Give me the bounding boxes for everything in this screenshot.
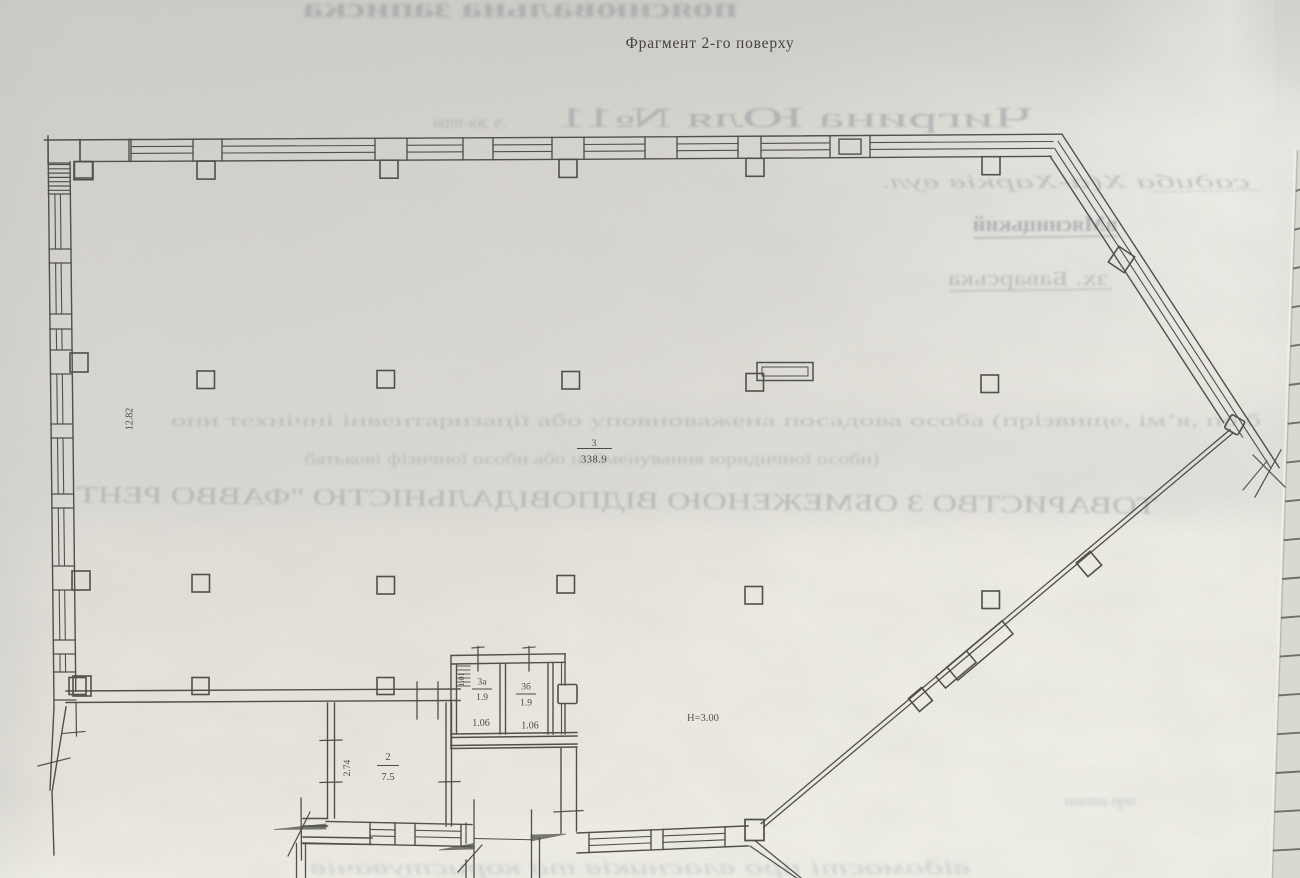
svg-text:ват-кв. е.: ват-кв. е. [433, 112, 506, 132]
svg-text:1.01: 1.01 [457, 673, 466, 687]
svg-text:2.74: 2.74 [343, 759, 353, 776]
svg-text:Фрагмент 2-го поверху: Фрагмент 2-го поверху [626, 35, 795, 52]
svg-text:3а: 3а [478, 678, 488, 688]
svg-text:зх. Баварська: зх. Баварська [948, 268, 1108, 290]
svg-text:Чигрина Юля №11: Чигрина Юля №11 [558, 103, 1033, 134]
svg-text:1.06: 1.06 [472, 718, 490, 729]
svg-text:пакти про: пакти про [1065, 793, 1136, 810]
svg-text:1.9: 1.9 [520, 699, 532, 709]
svg-text:12.82: 12.82 [125, 408, 136, 431]
svg-text:1.06: 1.06 [521, 721, 539, 732]
svg-text:вМясницький: вМясницький [972, 211, 1117, 236]
svg-text:2: 2 [385, 752, 390, 763]
svg-text:1.9: 1.9 [476, 693, 488, 703]
svg-text:338.9: 338.9 [581, 455, 607, 466]
svg-text:3: 3 [592, 439, 597, 449]
svg-text:7.5: 7.5 [381, 772, 394, 783]
svg-text:Н=3.00: Н=3.00 [687, 713, 719, 724]
svg-text:они технічні інвентаризації аб: они технічні інвентаризації або уповнова… [171, 411, 1261, 430]
svg-text:садиба Х(а-Харків вул.: садиба Х(а-Харків вул. [880, 172, 1250, 193]
svg-text:пояснювальна записка: пояснювальна записка [303, 0, 738, 24]
svg-text:відомості про власників та кор: відомості про власників та користувачів [310, 855, 970, 878]
svg-text:3б: 3б [521, 682, 531, 693]
